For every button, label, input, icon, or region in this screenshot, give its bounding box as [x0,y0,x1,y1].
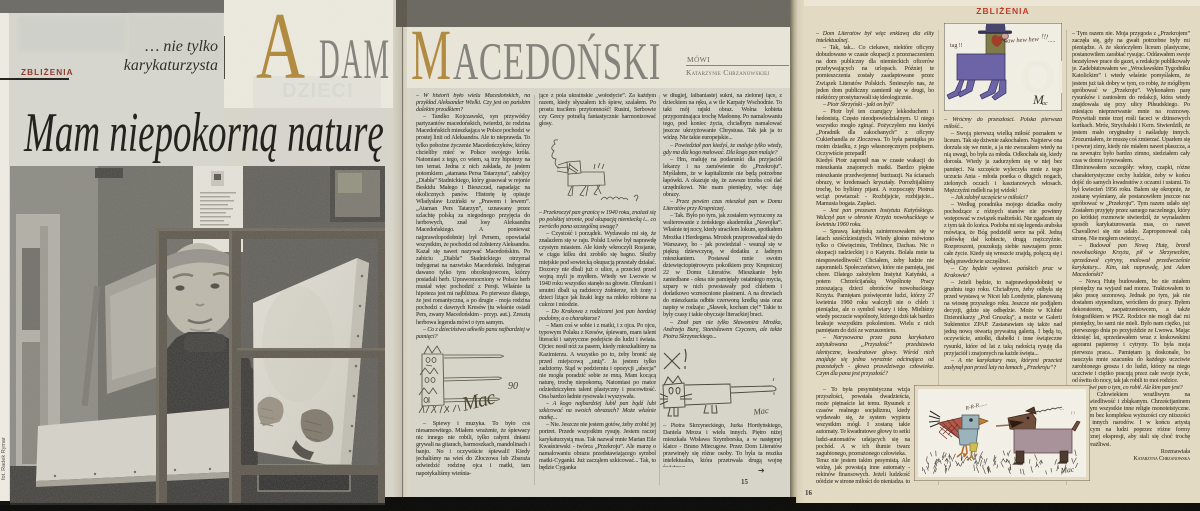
svg-text:...: ... [1060,407,1064,412]
svg-text:tag !!: tag !! [950,43,963,49]
svg-text:Mac: Mac [1059,465,1075,476]
svg-text:Mac: Mac [752,405,770,417]
svg-text:Mac: Mac [459,386,498,416]
svg-text:ac: ac [1042,101,1048,107]
svg-text:.....: ..... [1048,38,1056,44]
svg-text:90: 90 [508,381,518,392]
